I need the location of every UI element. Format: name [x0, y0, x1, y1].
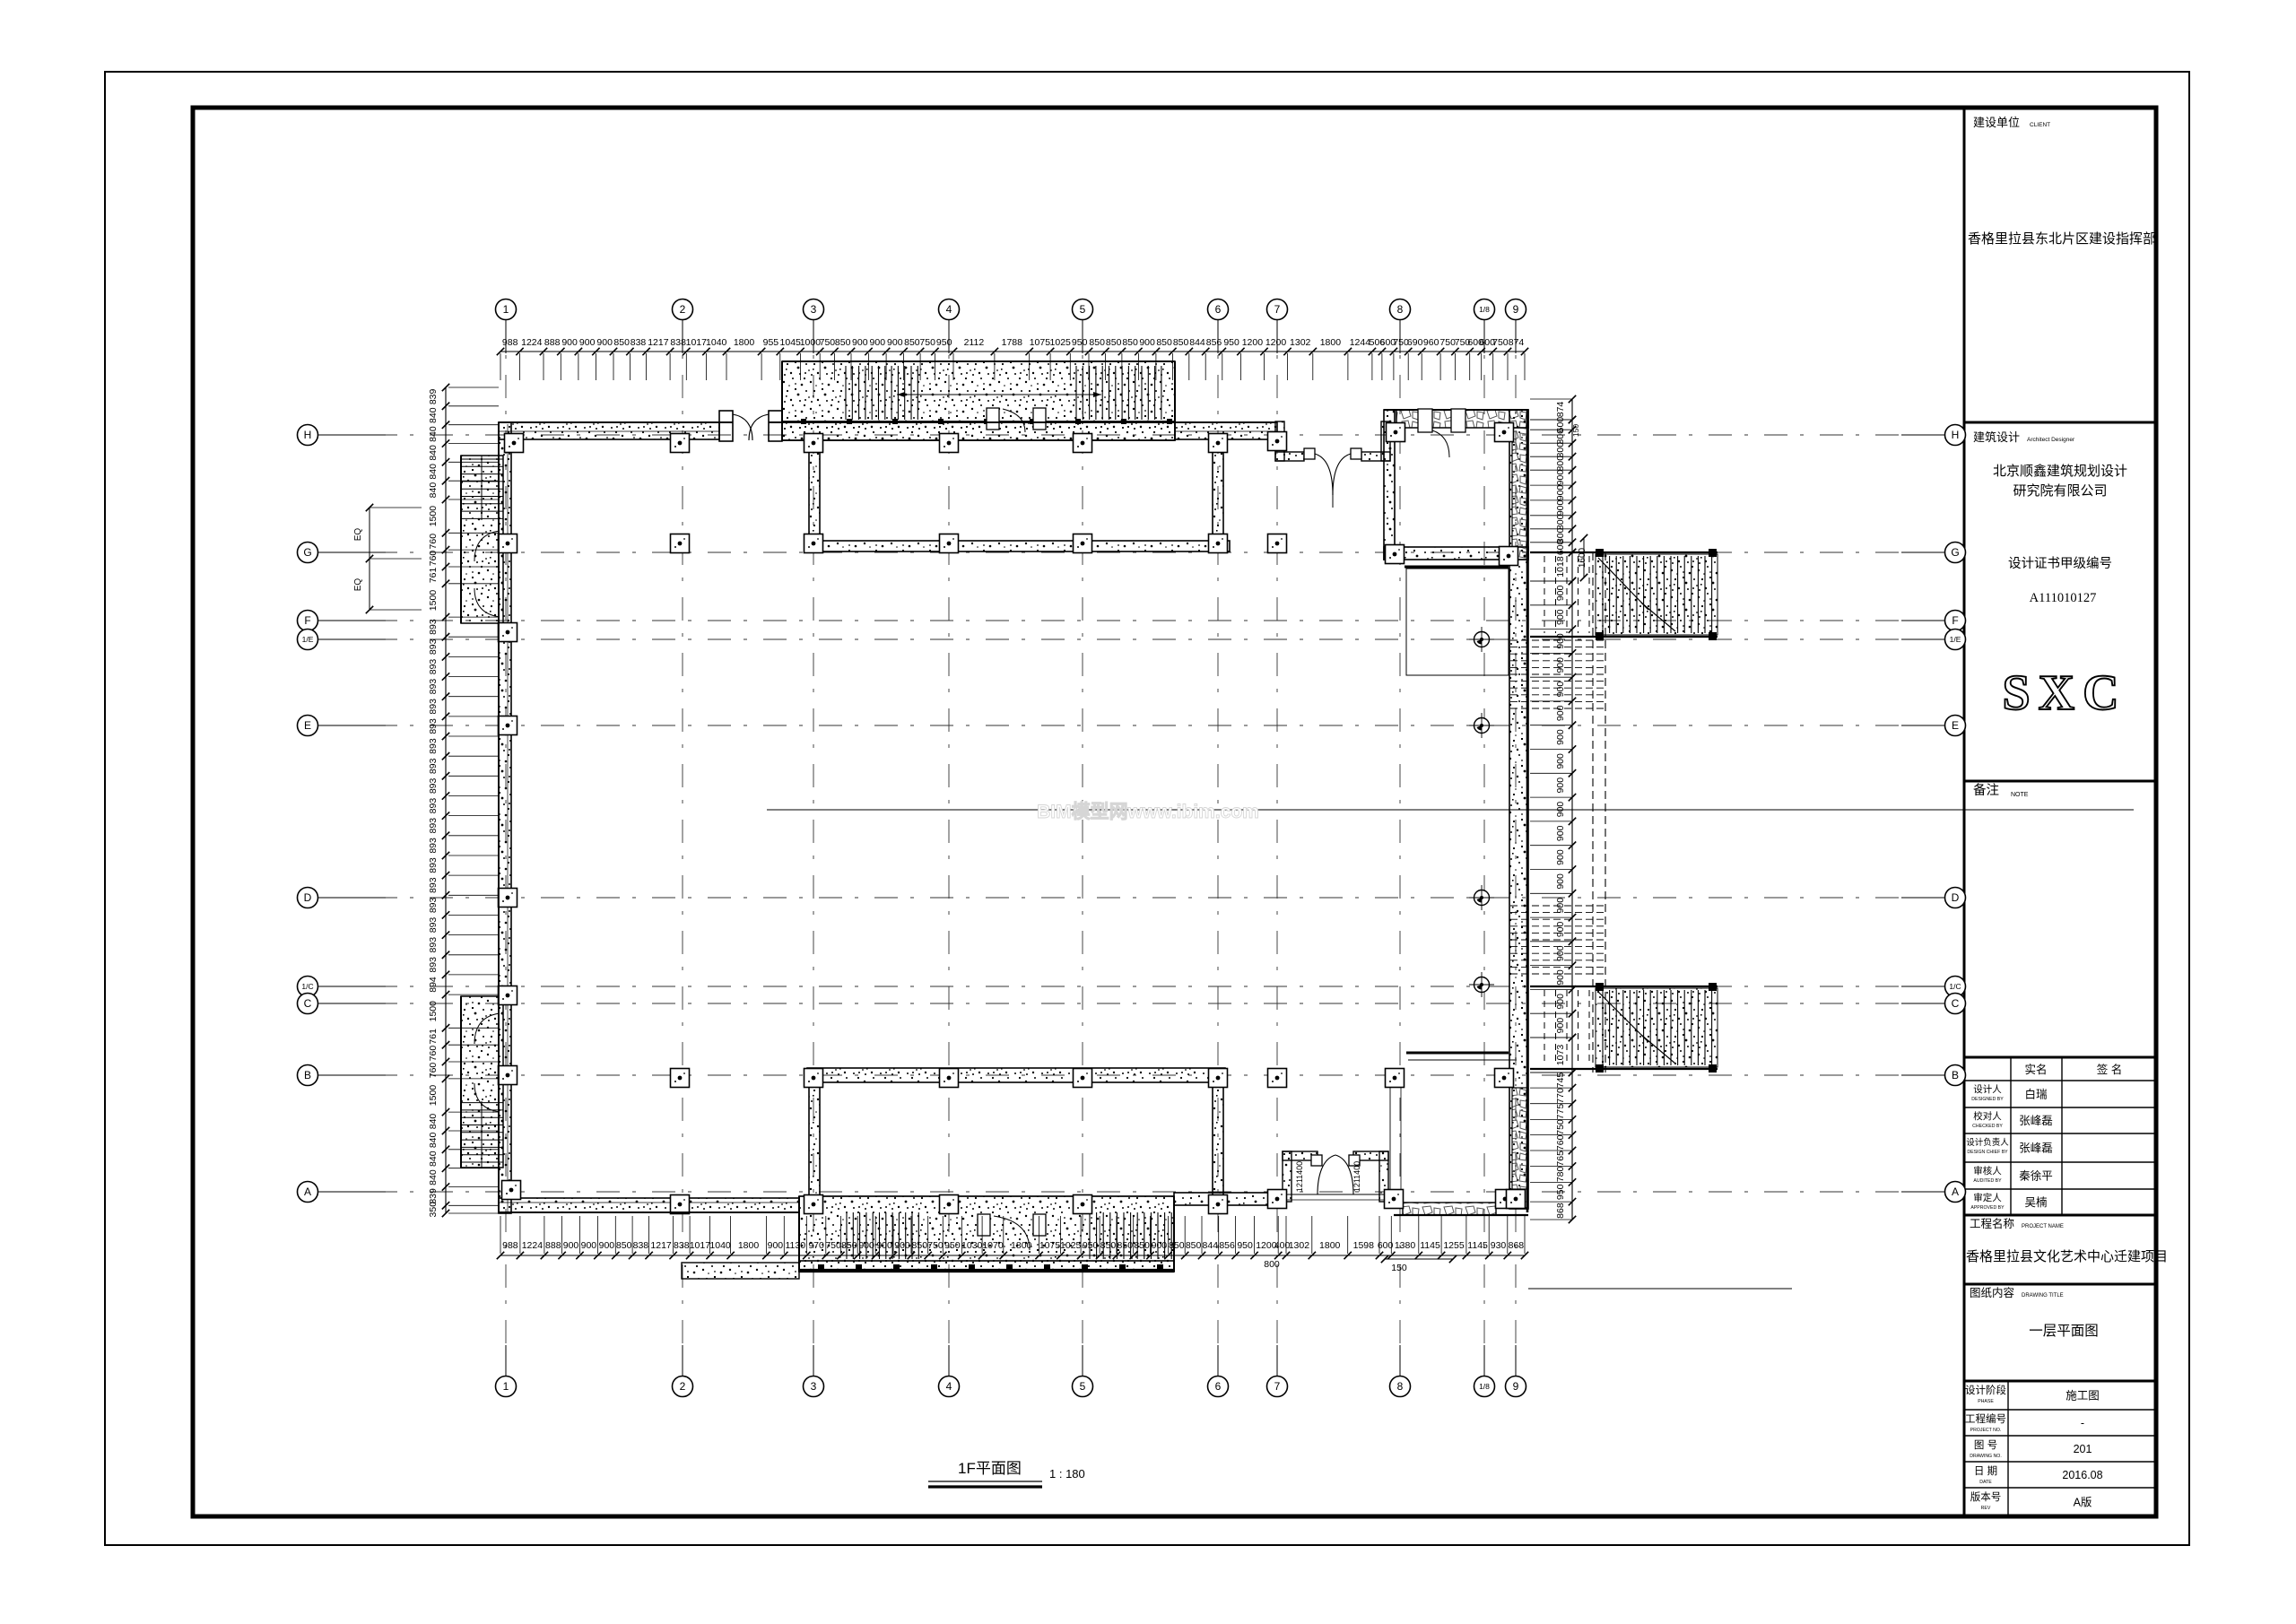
svg-text:EQ: EQ [353, 578, 363, 592]
svg-text:840: 840 [428, 1151, 439, 1167]
svg-text:761: 761 [428, 567, 439, 583]
svg-text:1224: 1224 [522, 1240, 544, 1251]
svg-text:设计阶段: 设计阶段 [1965, 1384, 2006, 1396]
svg-text:850: 850 [1156, 337, 1172, 348]
svg-text:1030: 1030 [961, 1240, 983, 1251]
svg-text:1145: 1145 [1420, 1240, 1440, 1251]
svg-text:1244: 1244 [1350, 337, 1371, 348]
svg-text:839: 839 [428, 388, 439, 404]
svg-text:868: 868 [1555, 1203, 1566, 1219]
svg-text:2112: 2112 [964, 337, 985, 348]
svg-text:SXC: SXC [2002, 665, 2126, 721]
svg-text:900: 900 [1555, 682, 1566, 698]
svg-text:893: 893 [428, 917, 439, 934]
svg-text:1800: 1800 [734, 337, 755, 348]
svg-text:6: 6 [1215, 303, 1222, 316]
svg-text:900: 900 [894, 1240, 910, 1251]
svg-text:150: 150 [1391, 1263, 1407, 1273]
svg-text:1/E: 1/E [302, 635, 314, 644]
svg-text:1/8: 1/8 [1479, 1382, 1490, 1391]
svg-text:1040: 1040 [706, 337, 727, 348]
svg-text:750: 750 [1555, 1119, 1566, 1135]
svg-text:C: C [1952, 997, 1960, 1010]
svg-text:1302: 1302 [1289, 1240, 1310, 1251]
svg-text:888: 888 [544, 337, 561, 348]
svg-text:F: F [304, 614, 310, 627]
svg-text:900: 900 [1152, 1240, 1168, 1251]
svg-text:A: A [304, 1185, 311, 1198]
svg-text:900: 900 [1555, 825, 1566, 841]
svg-text:874: 874 [1555, 402, 1566, 418]
svg-text:900: 900 [1555, 921, 1566, 937]
svg-text:201: 201 [2074, 1443, 2092, 1455]
svg-text:893: 893 [428, 638, 439, 655]
svg-text:备注: 备注 [1973, 783, 1999, 798]
svg-text:750: 750 [820, 337, 836, 348]
svg-text:1598: 1598 [1353, 1240, 1375, 1251]
svg-text:770: 770 [1555, 1088, 1566, 1104]
svg-text:988: 988 [502, 337, 518, 348]
svg-text:900: 900 [1555, 585, 1566, 601]
svg-text:REV: REV [1981, 1506, 1991, 1511]
svg-text:EQ: EQ [353, 528, 363, 542]
svg-text:900: 900 [1555, 609, 1566, 625]
svg-text:900: 900 [870, 337, 886, 348]
svg-text:6: 6 [1215, 1380, 1222, 1393]
svg-text:960: 960 [1423, 337, 1439, 348]
svg-text:建设单位: 建设单位 [1973, 116, 2020, 129]
svg-text:838: 838 [674, 1240, 690, 1251]
svg-text:900: 900 [596, 337, 613, 348]
svg-text:审定人: 审定人 [1973, 1192, 2002, 1203]
svg-text:850: 850 [1122, 337, 1138, 348]
svg-text:2: 2 [680, 1380, 686, 1393]
svg-text:1800: 1800 [1320, 337, 1342, 348]
svg-text:850: 850 [1134, 1240, 1150, 1251]
svg-text:850: 850 [1173, 337, 1189, 348]
svg-text:900: 900 [1555, 849, 1566, 865]
svg-text:1045: 1045 [780, 337, 802, 348]
svg-text:900: 900 [563, 1240, 579, 1251]
svg-text:900: 900 [1555, 802, 1566, 818]
svg-text:张峰磊: 张峰磊 [2019, 1114, 2053, 1127]
svg-text:1/C: 1/C [301, 982, 313, 991]
svg-text:设计人: 设计人 [1973, 1083, 2002, 1095]
svg-text:DESIGN CHIEF BY: DESIGN CHIEF BY [1967, 1150, 2008, 1155]
svg-text:350: 350 [428, 1202, 439, 1218]
svg-text:900: 900 [1555, 499, 1566, 516]
svg-text:900: 900 [1555, 898, 1566, 914]
svg-text:760: 760 [428, 1063, 439, 1079]
svg-text:签 名: 签 名 [2097, 1063, 2122, 1076]
svg-text:850: 850 [1106, 337, 1122, 348]
svg-text:1500: 1500 [428, 1085, 439, 1107]
svg-text:893: 893 [428, 838, 439, 854]
svg-text:D: D [1952, 891, 1960, 904]
svg-text:970: 970 [808, 1240, 824, 1251]
svg-text:760: 760 [428, 551, 439, 567]
svg-text:白瑞: 白瑞 [2024, 1088, 2047, 1101]
svg-text:840: 840 [428, 426, 439, 442]
svg-text:850: 850 [841, 1240, 857, 1251]
svg-text:930: 930 [1491, 1240, 1507, 1251]
svg-text:760: 760 [1555, 1134, 1566, 1151]
svg-text:900: 900 [1555, 969, 1566, 986]
svg-text:1070: 1070 [982, 1240, 1004, 1251]
svg-text:840: 840 [428, 1114, 439, 1130]
svg-text:893: 893 [428, 659, 439, 675]
svg-text:1788: 1788 [1002, 337, 1023, 348]
svg-text:900: 900 [1555, 705, 1566, 721]
svg-text:BIM模型网www.ibim.com: BIM模型网www.ibim.com [1037, 801, 1259, 822]
svg-text:B: B [304, 1069, 311, 1081]
svg-text:900: 900 [1555, 633, 1566, 649]
svg-text:893: 893 [428, 777, 439, 794]
svg-text:审核人: 审核人 [1973, 1165, 2002, 1177]
svg-text:900: 900 [1555, 485, 1566, 501]
svg-text:8: 8 [1397, 303, 1404, 316]
svg-text:850: 850 [616, 1240, 632, 1251]
svg-text:900: 900 [1555, 729, 1566, 745]
svg-text:950: 950 [1555, 1184, 1566, 1200]
svg-text:900: 900 [852, 337, 868, 348]
svg-text:4: 4 [946, 1380, 952, 1393]
svg-text:900: 900 [1555, 873, 1566, 890]
svg-text:745: 745 [1555, 1073, 1566, 1089]
svg-text:900: 900 [1555, 945, 1566, 961]
svg-text:图纸内容: 图纸内容 [1970, 1286, 2014, 1299]
svg-text:1025: 1025 [1050, 337, 1072, 348]
svg-text:893: 893 [428, 957, 439, 973]
svg-text:5: 5 [1080, 1380, 1086, 1393]
svg-text:840: 840 [428, 482, 439, 499]
svg-text:888: 888 [545, 1240, 561, 1251]
svg-text:C: C [304, 997, 312, 1010]
svg-text:893: 893 [428, 679, 439, 695]
svg-text:1224: 1224 [521, 337, 543, 348]
svg-text:3: 3 [811, 1380, 817, 1393]
svg-text:工程编号: 工程编号 [1965, 1412, 2006, 1425]
svg-text:800: 800 [1555, 514, 1566, 530]
svg-text:1500: 1500 [428, 506, 439, 527]
svg-text:9: 9 [1513, 1380, 1519, 1393]
svg-text:1018: 1018 [1555, 556, 1566, 578]
svg-text:765: 765 [1555, 1151, 1566, 1167]
svg-text:1: 1 [503, 303, 509, 316]
svg-text:840: 840 [428, 407, 439, 423]
svg-text:840: 840 [428, 1169, 439, 1185]
svg-text:2016.08: 2016.08 [2062, 1469, 2102, 1481]
svg-text:850: 850 [1089, 337, 1105, 348]
svg-text:893: 893 [428, 619, 439, 635]
svg-text:1017: 1017 [690, 1240, 711, 1251]
svg-text:893: 893 [428, 818, 439, 834]
svg-text:900: 900 [1555, 470, 1566, 486]
svg-text:893: 893 [428, 699, 439, 715]
svg-text:600: 600 [1378, 1240, 1394, 1251]
svg-text:1040: 1040 [709, 1240, 731, 1251]
svg-text:900: 900 [579, 337, 596, 348]
svg-text:H: H [304, 429, 312, 441]
svg-text:850: 850 [904, 337, 920, 348]
svg-text:A111010127: A111010127 [2030, 591, 2097, 605]
svg-text:吴楠: 吴楠 [2024, 1195, 2047, 1209]
svg-text:840: 840 [428, 464, 439, 480]
svg-text:AUDITED BY: AUDITED BY [1973, 1178, 2002, 1184]
svg-text:DRAWING TITLE: DRAWING TITLE [2022, 1293, 2064, 1298]
svg-text:一层平面图: 一层平面图 [2029, 1324, 2099, 1339]
svg-text:850: 850 [1118, 1240, 1134, 1251]
svg-text:4: 4 [946, 303, 952, 316]
svg-text:850: 850 [835, 337, 851, 348]
svg-text:760: 760 [428, 534, 439, 550]
svg-text:B: B [1952, 1069, 1959, 1081]
svg-text:894: 894 [428, 977, 439, 993]
svg-text:893: 893 [428, 877, 439, 893]
svg-text:1/E: 1/E [1950, 635, 1961, 644]
svg-text:设计证书甲级编号: 设计证书甲级编号 [2008, 556, 2112, 571]
svg-text:DESIGNED BY: DESIGNED BY [1971, 1097, 2004, 1102]
svg-text:1025: 1025 [1060, 1240, 1082, 1251]
svg-text:750: 750 [919, 337, 935, 348]
svg-text:750: 750 [927, 1240, 944, 1251]
svg-text:CHECKED BY: CHECKED BY [1972, 1124, 2003, 1129]
svg-text:838: 838 [670, 337, 686, 348]
svg-text:950: 950 [1237, 1240, 1253, 1251]
svg-text:900: 900 [876, 1240, 892, 1251]
svg-text:600: 600 [1555, 539, 1566, 555]
svg-text:900: 900 [1555, 777, 1566, 794]
svg-text:1600: 1600 [1578, 547, 1587, 568]
svg-text:893: 893 [428, 897, 439, 913]
svg-text:设计负责人: 设计负责人 [1966, 1137, 2009, 1148]
svg-text:1: 1 [503, 1380, 509, 1393]
svg-text:D: D [304, 891, 312, 904]
svg-text:施工图: 施工图 [2066, 1390, 2100, 1403]
svg-text:838: 838 [633, 1240, 649, 1251]
svg-text:950: 950 [1072, 337, 1088, 348]
svg-text:950: 950 [944, 1240, 961, 1251]
svg-text:840: 840 [428, 1132, 439, 1148]
svg-text:7: 7 [1274, 303, 1281, 316]
svg-text:秦徐平: 秦徐平 [2019, 1169, 2053, 1183]
svg-text:校对人: 校对人 [1973, 1110, 2002, 1122]
svg-text:1000: 1000 [800, 337, 822, 348]
svg-text:988: 988 [502, 1240, 518, 1251]
svg-text:900: 900 [1555, 994, 1566, 1010]
svg-text:1130: 1130 [786, 1240, 806, 1251]
svg-text:850: 850 [613, 337, 630, 348]
svg-text:实名: 实名 [2024, 1063, 2047, 1076]
svg-text:1075: 1075 [1039, 1240, 1061, 1251]
svg-text:PROJECT NAME: PROJECT NAME [2022, 1224, 2064, 1229]
svg-text:北京顺鑫建筑规划设计: 北京顺鑫建筑规划设计 [1993, 463, 2127, 479]
svg-text:900: 900 [1555, 657, 1566, 673]
svg-text:9: 9 [1513, 303, 1519, 316]
svg-text:750: 750 [825, 1240, 841, 1251]
svg-text:1 : 180: 1 : 180 [1049, 1467, 1085, 1481]
svg-text:856: 856 [1219, 1240, 1235, 1251]
svg-text:800: 800 [1555, 442, 1566, 458]
svg-text:838: 838 [631, 337, 647, 348]
svg-text:1017: 1017 [686, 337, 708, 348]
svg-text:1211400: 1211400 [1352, 1161, 1361, 1192]
svg-text:图 号: 图 号 [1974, 1439, 1997, 1451]
svg-text:CLIENT: CLIENT [2030, 122, 2050, 128]
svg-text:900: 900 [1139, 337, 1155, 348]
svg-text:1211400: 1211400 [1295, 1161, 1304, 1192]
svg-text:950: 950 [1223, 337, 1239, 348]
svg-text:850: 850 [1169, 1240, 1185, 1251]
svg-text:2: 2 [680, 303, 686, 316]
svg-text:NOTE: NOTE [2011, 792, 2029, 798]
svg-text:DATE: DATE [1979, 1480, 1992, 1485]
svg-text:A: A [1952, 1185, 1959, 1198]
svg-text:G: G [1951, 546, 1959, 559]
svg-text:955: 955 [763, 337, 779, 348]
svg-text:893: 893 [428, 758, 439, 774]
svg-text:844: 844 [1189, 337, 1205, 348]
svg-text:1217: 1217 [648, 337, 669, 348]
svg-text:1380: 1380 [1395, 1240, 1416, 1251]
svg-text:香格里拉县东北片区建设指挥部: 香格里拉县东北片区建设指挥部 [1968, 231, 2156, 247]
svg-text:900: 900 [768, 1240, 784, 1251]
svg-text:893: 893 [428, 718, 439, 734]
svg-text:1302: 1302 [1290, 337, 1311, 348]
svg-text:850: 850 [912, 1240, 928, 1251]
svg-text:A版: A版 [2074, 1497, 2092, 1509]
svg-text:研究院有限公司: 研究院有限公司 [2013, 482, 2107, 499]
svg-text:8: 8 [1397, 1380, 1404, 1393]
svg-text:893: 893 [428, 798, 439, 814]
svg-text:-: - [2081, 1417, 2084, 1429]
svg-text:893: 893 [428, 857, 439, 873]
svg-text:Architect Designer: Architect Designer [2027, 437, 2075, 443]
svg-text:1/C: 1/C [1949, 982, 1961, 991]
svg-text:E: E [1952, 719, 1959, 732]
svg-text:950: 950 [1083, 1240, 1099, 1251]
svg-text:1200: 1200 [1265, 337, 1287, 348]
svg-text:900: 900 [1555, 1018, 1566, 1034]
svg-text:868: 868 [1509, 1240, 1525, 1251]
svg-text:版本号: 版本号 [1970, 1490, 2002, 1503]
svg-text:893: 893 [428, 738, 439, 754]
svg-text:PROJECT NO.: PROJECT NO. [1970, 1428, 2002, 1433]
svg-text:1F平面图: 1F平面图 [958, 1460, 1022, 1477]
svg-text:893: 893 [428, 937, 439, 953]
svg-text:APPROVED BY: APPROVED BY [1970, 1205, 2005, 1211]
svg-text:900: 900 [561, 337, 578, 348]
svg-text:张峰磊: 张峰磊 [2019, 1142, 2053, 1155]
svg-text:900: 900 [887, 337, 903, 348]
svg-text:690: 690 [1407, 337, 1423, 348]
svg-text:150: 150 [1571, 424, 1580, 437]
svg-text:5: 5 [1080, 303, 1086, 316]
svg-text:E: E [304, 719, 311, 732]
svg-text:780: 780 [1555, 1166, 1566, 1182]
svg-text:761: 761 [428, 1029, 439, 1045]
svg-text:H: H [1952, 429, 1960, 441]
svg-text:850: 850 [1100, 1240, 1117, 1251]
svg-text:800: 800 [1555, 429, 1566, 445]
svg-text:800: 800 [1264, 1259, 1280, 1270]
svg-text:1217: 1217 [650, 1240, 672, 1251]
svg-text:840: 840 [428, 445, 439, 461]
svg-text:F: F [1952, 614, 1958, 627]
svg-text:900: 900 [599, 1240, 615, 1251]
svg-text:1075: 1075 [1030, 337, 1051, 348]
svg-text:工程名称: 工程名称 [1970, 1217, 2014, 1230]
svg-text:856: 856 [1206, 337, 1222, 348]
svg-text:900: 900 [1555, 753, 1566, 769]
svg-text:DRAWING NO.: DRAWING NO. [1970, 1454, 2002, 1459]
svg-text:1/8: 1/8 [1479, 305, 1490, 314]
svg-text:1200: 1200 [1242, 337, 1264, 348]
svg-text:7: 7 [1274, 1380, 1281, 1393]
svg-text:日 期: 日 期 [1974, 1465, 1997, 1477]
svg-text:900: 900 [858, 1240, 874, 1251]
svg-text:1073: 1073 [1555, 1045, 1566, 1066]
svg-text:950: 950 [936, 337, 952, 348]
svg-text:844: 844 [1203, 1240, 1219, 1251]
svg-text:1255: 1255 [1443, 1240, 1465, 1251]
svg-text:900: 900 [581, 1240, 597, 1251]
svg-text:750: 750 [1492, 337, 1509, 348]
svg-text:1500: 1500 [428, 590, 439, 612]
svg-text:760: 760 [428, 1046, 439, 1062]
svg-text:1500: 1500 [428, 1001, 439, 1022]
svg-text:1145: 1145 [1467, 1240, 1488, 1251]
svg-text:1800: 1800 [738, 1240, 760, 1251]
svg-text:香格里拉县文化艺术中心迁建项目: 香格里拉县文化艺术中心迁建项目 [1966, 1249, 2168, 1264]
svg-text:800: 800 [1555, 456, 1566, 472]
svg-text:750: 750 [1439, 337, 1456, 348]
svg-text:G: G [303, 546, 311, 559]
svg-text:874: 874 [1509, 337, 1525, 348]
svg-text:3: 3 [811, 303, 817, 316]
svg-text:1800: 1800 [1011, 1240, 1032, 1251]
svg-text:1800: 1800 [1319, 1240, 1341, 1251]
svg-text:850: 850 [1186, 1240, 1202, 1251]
svg-text:建筑设计: 建筑设计 [1973, 430, 2020, 444]
svg-text:775: 775 [1555, 1104, 1566, 1120]
svg-text:PHASE: PHASE [1978, 1399, 1994, 1404]
